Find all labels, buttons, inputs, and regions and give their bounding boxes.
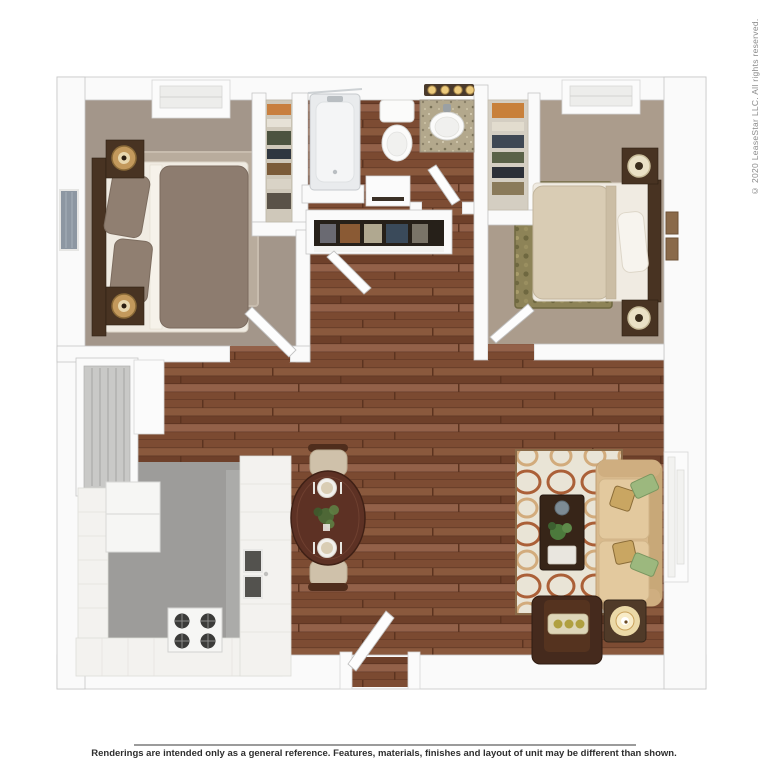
nightstand-right-top [622, 148, 658, 184]
linen-closet [306, 210, 452, 254]
divider-rule [134, 744, 636, 746]
decor-bowl [555, 501, 569, 515]
sofa [596, 460, 662, 606]
floorplan-rendering [0, 0, 768, 768]
refrigerator [106, 482, 160, 552]
window-bedroom-left-side [60, 190, 78, 250]
window-bedroom-right [562, 80, 640, 114]
vanity-sink [420, 100, 474, 152]
closet-right-bedroom [488, 100, 528, 210]
wall-closet-left-a [252, 93, 266, 222]
comforter-left [160, 166, 248, 328]
wall-closet-right-bottom [488, 210, 540, 225]
doorway-bedroom-right [488, 344, 534, 360]
closet-left-bedroom [266, 100, 292, 222]
kitchen-cabinet-upper [134, 360, 164, 434]
bath-cabinet [366, 176, 410, 206]
copyright-text: © 2020 LeaseStar LLC. All rights reserve… [750, 4, 760, 196]
peninsula-side [226, 470, 240, 650]
entry-jamb-right [408, 652, 420, 689]
side-table [604, 600, 646, 642]
window-bedroom-left [152, 80, 230, 118]
entry-jamb-left [340, 652, 352, 689]
nightstand-right-bottom [622, 300, 658, 336]
range-stove [168, 608, 222, 652]
wall-right [664, 77, 706, 689]
wall-bedroom-right-bottom [534, 344, 664, 360]
headboard-right [648, 180, 661, 302]
bed-right [533, 180, 661, 302]
window-living-right [664, 452, 688, 582]
decor-tray [548, 546, 576, 564]
coffee-table [540, 495, 584, 570]
disclaimer-text: Renderings are intended only as a genera… [0, 748, 768, 759]
kitchen-faucet [264, 572, 268, 576]
bathtub [308, 89, 362, 190]
utility-closet [76, 358, 138, 496]
comforter-right [533, 186, 609, 299]
vanity-lights [424, 84, 474, 96]
wall-bath-stub-b [462, 202, 474, 214]
nightstand-left-top [106, 140, 144, 178]
living-room [516, 450, 662, 664]
armchair [532, 596, 602, 664]
headboard-left [92, 158, 106, 336]
pillow [617, 211, 649, 273]
dining-table [291, 471, 365, 565]
tub-drain [333, 170, 337, 174]
nightstand-left-bottom [106, 287, 144, 325]
wall-bedroom-right-left [474, 85, 488, 360]
tub-faucet [327, 96, 343, 102]
sink-faucet [443, 104, 451, 112]
page: © 2020 LeaseStar LLC. All rights reserve… [0, 0, 768, 768]
